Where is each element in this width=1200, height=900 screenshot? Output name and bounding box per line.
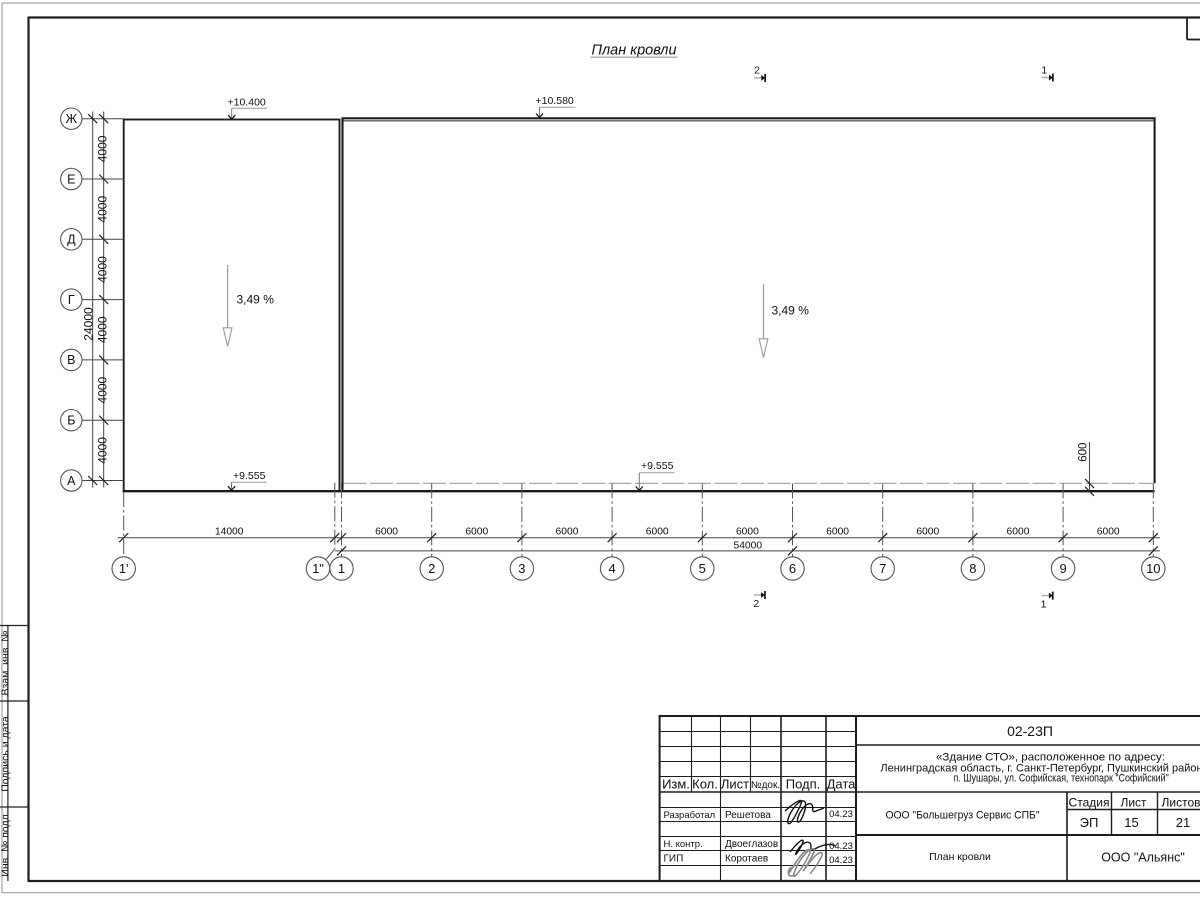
svg-text:Стадия: Стадия xyxy=(1069,795,1110,809)
svg-text:21: 21 xyxy=(1176,815,1190,830)
svg-text:4000: 4000 xyxy=(95,256,109,283)
svg-text:Ж: Ж xyxy=(66,112,78,126)
svg-text:В: В xyxy=(67,353,75,367)
svg-text:1': 1' xyxy=(119,561,129,576)
svg-text:04.23: 04.23 xyxy=(829,841,853,852)
svg-text:Инв. № подл.: Инв. № подл. xyxy=(0,811,12,876)
svg-text:Коротаев: Коротаев xyxy=(725,854,768,865)
svg-text:6000: 6000 xyxy=(736,527,759,538)
svg-text:3,49 %: 3,49 % xyxy=(237,292,275,306)
svg-text:02-23П: 02-23П xyxy=(1007,723,1053,739)
svg-text:+9.555: +9.555 xyxy=(233,470,266,482)
svg-text:4000: 4000 xyxy=(95,316,109,343)
svg-text:600: 600 xyxy=(1077,443,1089,462)
svg-text:6000: 6000 xyxy=(826,527,849,538)
svg-text:Г: Г xyxy=(68,293,75,307)
svg-text:+10.580: +10.580 xyxy=(536,95,574,107)
svg-text:3,49 %: 3,49 % xyxy=(772,303,810,317)
svg-text:1: 1 xyxy=(1041,598,1047,610)
svg-text:Решетова: Решетова xyxy=(725,810,771,821)
svg-text:Дата: Дата xyxy=(827,777,857,792)
svg-text:6000: 6000 xyxy=(556,527,579,538)
svg-text:3: 3 xyxy=(518,561,525,576)
svg-text:+10.400: +10.400 xyxy=(228,96,266,108)
svg-text:04.23: 04.23 xyxy=(829,855,853,866)
svg-text:2: 2 xyxy=(754,65,760,77)
svg-text:1": 1" xyxy=(312,561,324,576)
svg-text:7: 7 xyxy=(879,561,886,576)
svg-text:6000: 6000 xyxy=(1007,527,1030,538)
svg-text:№док.: №док. xyxy=(751,780,780,791)
svg-text:1: 1 xyxy=(338,561,345,576)
svg-text:Взам. инв. №: Взам. инв. № xyxy=(0,630,12,695)
svg-text:Разработал: Разработал xyxy=(664,810,716,821)
svg-text:15: 15 xyxy=(1124,815,1138,830)
svg-text:04.23: 04.23 xyxy=(829,809,853,820)
svg-text:9: 9 xyxy=(1059,561,1066,576)
svg-text:План кровли: План кровли xyxy=(929,851,991,863)
svg-text:4000: 4000 xyxy=(95,135,109,162)
svg-text:А: А xyxy=(67,474,76,488)
svg-text:4: 4 xyxy=(608,561,615,576)
svg-text:ООО "Альянс": ООО "Альянс" xyxy=(1101,851,1185,865)
svg-text:Двоеглазов: Двоеглазов xyxy=(725,839,778,850)
svg-text:ГИП: ГИП xyxy=(664,853,684,864)
svg-text:2: 2 xyxy=(428,561,435,576)
svg-text:4000: 4000 xyxy=(95,196,109,223)
svg-text:+9.555: +9.555 xyxy=(641,460,674,472)
svg-text:54000: 54000 xyxy=(733,540,762,551)
svg-text:6000: 6000 xyxy=(646,527,669,538)
svg-text:6000: 6000 xyxy=(375,527,398,538)
svg-text:6000: 6000 xyxy=(465,527,488,538)
svg-text:Кол.: Кол. xyxy=(692,777,718,792)
svg-text:Подпись и дата: Подпись и дата xyxy=(0,716,12,792)
svg-text:6000: 6000 xyxy=(916,527,939,538)
svg-text:2: 2 xyxy=(753,598,759,610)
svg-text:Лист: Лист xyxy=(721,777,749,792)
svg-text:п. Шушары, ул. Софийская, техн: п. Шушары, ул. Софийская, технопарк "Соф… xyxy=(954,773,1169,785)
svg-text:8: 8 xyxy=(969,561,976,576)
svg-text:План кровли: План кровли xyxy=(591,43,676,59)
svg-text:ЭП: ЭП xyxy=(1080,815,1099,830)
svg-text:10: 10 xyxy=(1146,561,1160,576)
svg-text:Лист: Лист xyxy=(1120,795,1147,809)
svg-text:14000: 14000 xyxy=(215,527,244,538)
svg-text:Подп.: Подп. xyxy=(786,777,821,792)
svg-text:Д: Д xyxy=(67,233,76,247)
svg-text:4000: 4000 xyxy=(95,437,109,464)
svg-text:Листов: Листов xyxy=(1162,795,1200,809)
svg-text:24000: 24000 xyxy=(81,307,95,341)
svg-text:6: 6 xyxy=(789,561,796,576)
svg-text:Н. контр.: Н. контр. xyxy=(664,839,703,850)
svg-text:1: 1 xyxy=(1041,65,1047,77)
svg-text:5: 5 xyxy=(699,561,706,576)
svg-text:ООО "Большегруз Сервис СПБ": ООО "Большегруз Сервис СПБ" xyxy=(886,810,1040,822)
svg-text:Е: Е xyxy=(67,172,75,186)
svg-text:Б: Б xyxy=(67,414,75,428)
svg-text:Изм.: Изм. xyxy=(662,777,690,792)
svg-text:6000: 6000 xyxy=(1097,527,1120,538)
svg-text:4000: 4000 xyxy=(95,376,109,403)
